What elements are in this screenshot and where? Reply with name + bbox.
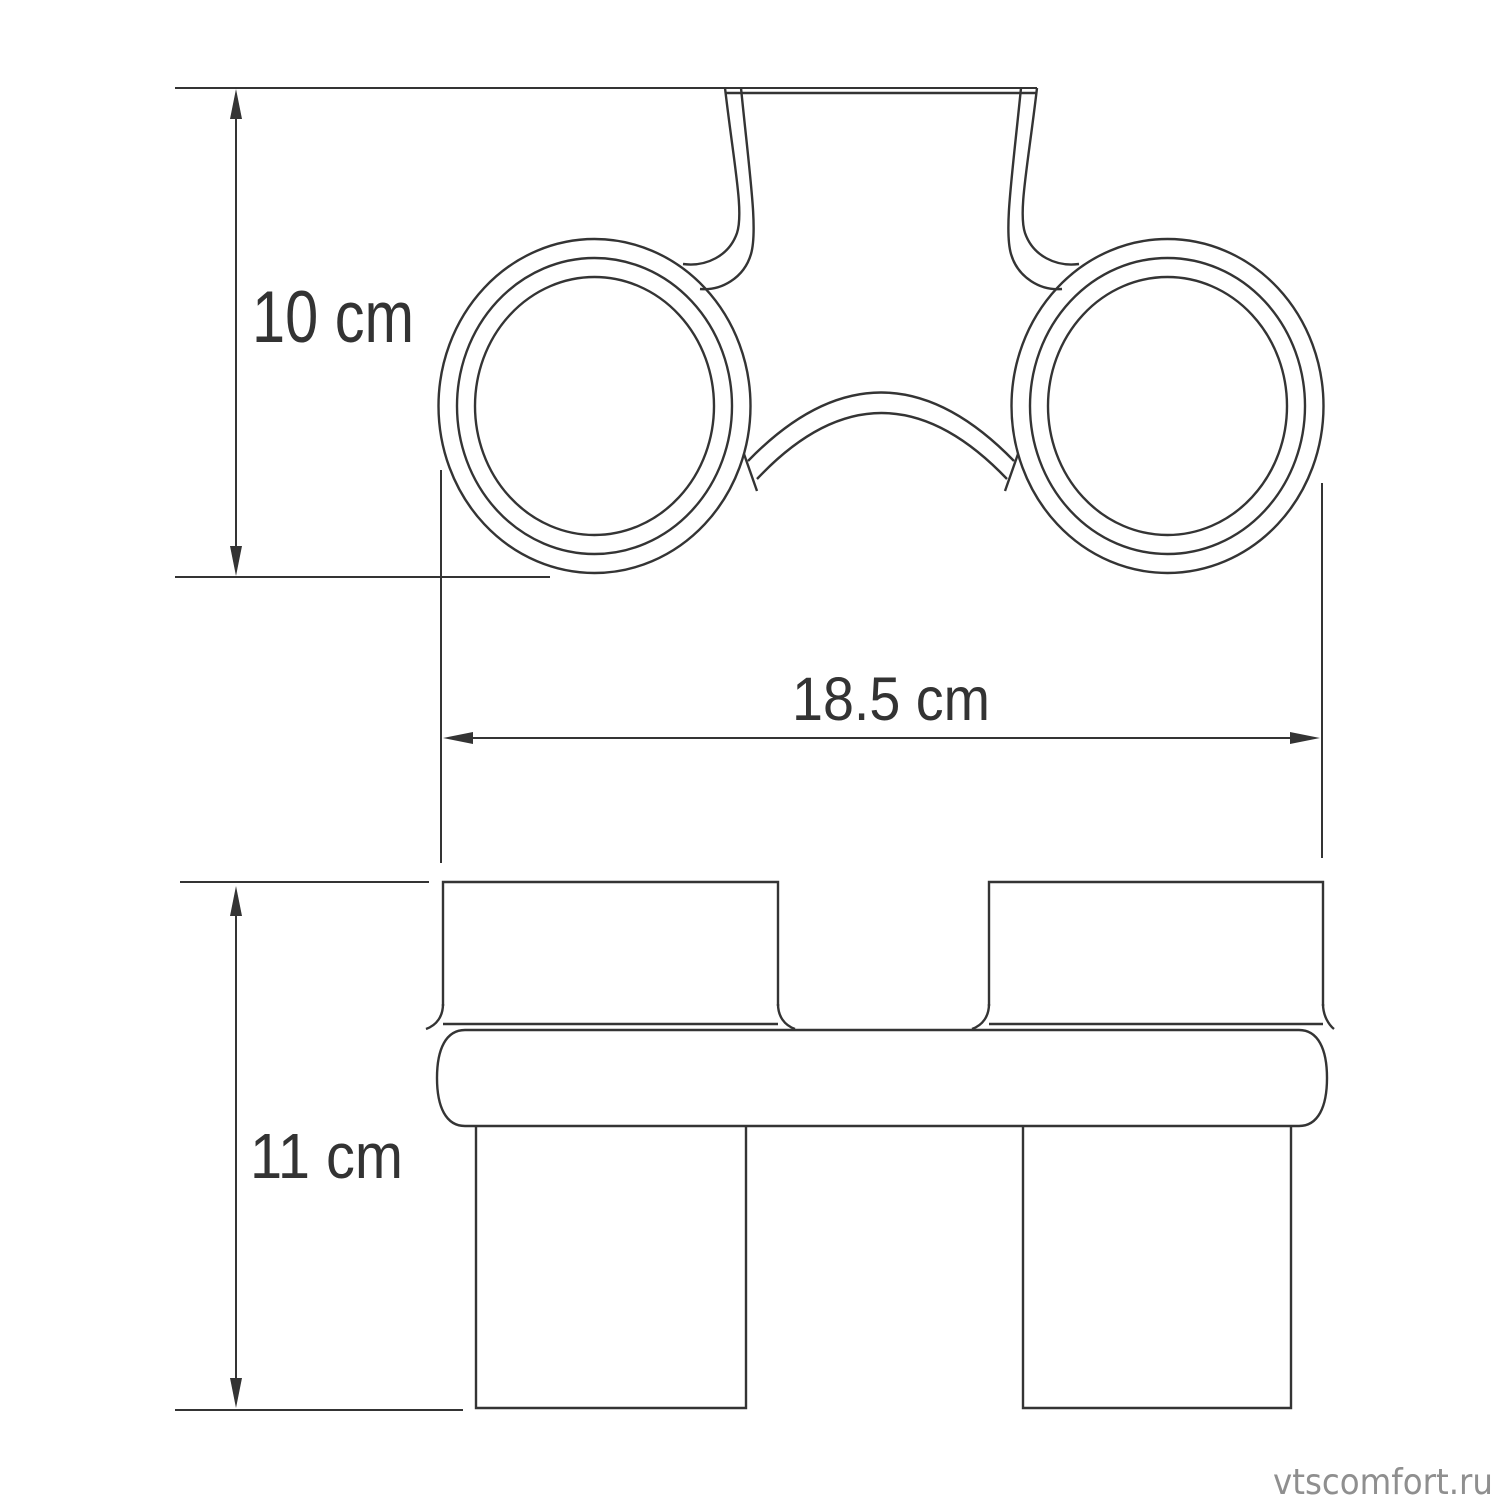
wall-plate-stem: [683, 88, 1079, 289]
dimension-width: 18.5 cm: [441, 470, 1322, 863]
right-glass-top-outline: [989, 882, 1323, 1006]
drawing-canvas: 10 cm 18.5 cm 11 cm vtscomfort.ru: [0, 0, 1500, 1500]
front-view: [426, 882, 1334, 1408]
left-glass-left-flare: [426, 1004, 443, 1029]
right-glass-right-flare: [1323, 1004, 1334, 1029]
height-arrowhead-down: [230, 1378, 242, 1408]
dimension-drawing: 10 cm 18.5 cm 11 cm vtscomfort.ru: [0, 0, 1500, 1500]
width-dimension-label: 18.5 cm: [792, 665, 990, 733]
stem-right-outer-edge: [1023, 88, 1079, 264]
width-arrowhead-right: [1290, 732, 1320, 744]
left-ring-middle-rim: [457, 258, 732, 554]
stem-left-outer-edge: [683, 88, 739, 264]
depth-arrowhead-down: [230, 546, 242, 576]
stem-left-inner-edge: [700, 88, 754, 289]
left-glass-right-flare: [778, 1004, 795, 1029]
depth-dimension-label: 10 cm: [252, 277, 414, 358]
height-dimension-label: 11 cm: [250, 1120, 403, 1192]
right-ring-inner-rim: [1048, 277, 1287, 535]
right-glass-top: [972, 882, 1334, 1029]
left-glass-body: [476, 1126, 746, 1408]
dimension-height: 11 cm: [175, 882, 463, 1410]
holder-bar: [437, 1030, 1327, 1126]
left-glass-top: [426, 882, 795, 1029]
saddle-bridge: [744, 393, 1018, 492]
watermark-text: vtscomfort.ru: [1273, 1462, 1493, 1500]
right-ring-middle-rim: [1030, 258, 1305, 554]
top-view: [439, 88, 1324, 573]
right-glass-body: [1023, 1126, 1291, 1408]
dimension-depth: 10 cm: [175, 88, 1037, 577]
stem-right-inner-edge: [1008, 88, 1062, 289]
left-ring-inner-rim: [475, 277, 714, 535]
width-arrowhead-left: [443, 732, 473, 744]
height-arrowhead-up: [230, 886, 242, 916]
depth-arrowhead-up: [230, 89, 242, 119]
right-glass-left-flare: [972, 1004, 989, 1029]
left-glass-top-outline: [443, 882, 778, 1006]
